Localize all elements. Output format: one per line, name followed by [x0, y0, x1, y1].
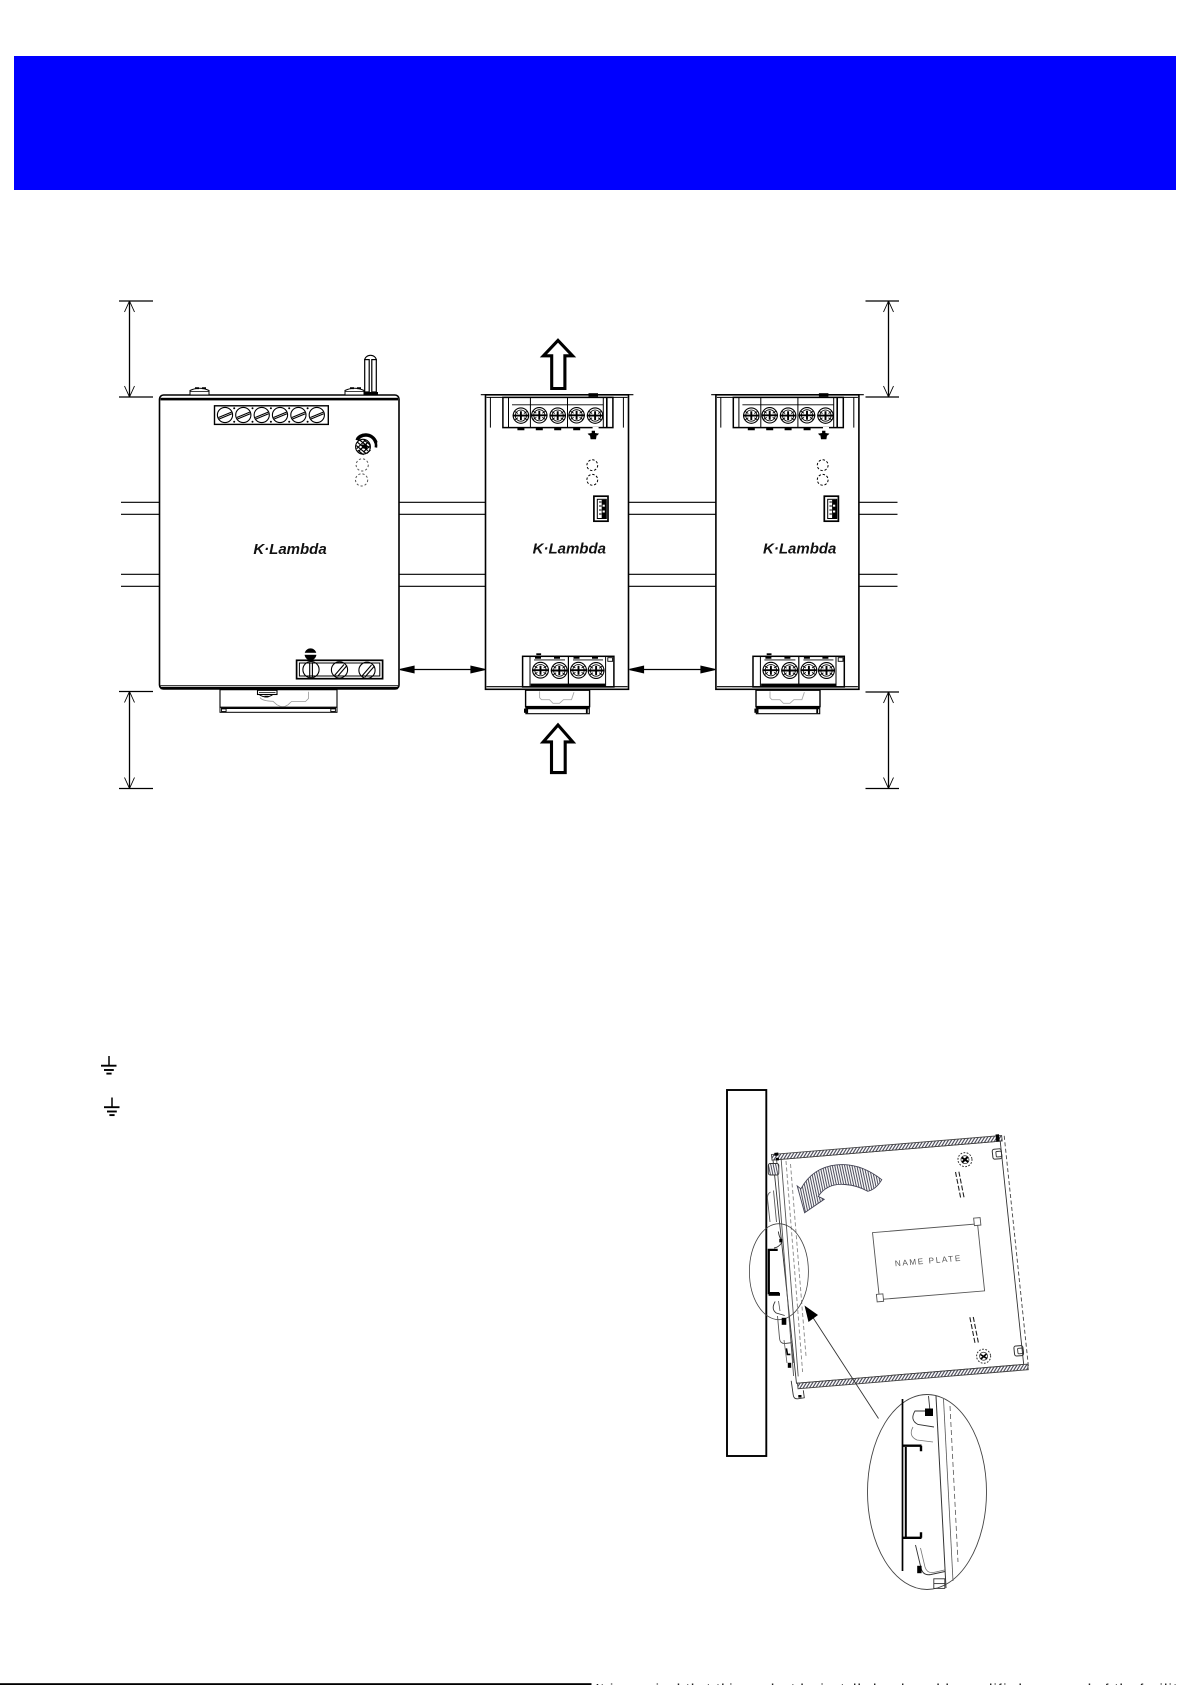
svg-text:K·Lambda: K·Lambda [253, 541, 326, 558]
svg-text:K·Lambda: K·Lambda [533, 541, 606, 558]
